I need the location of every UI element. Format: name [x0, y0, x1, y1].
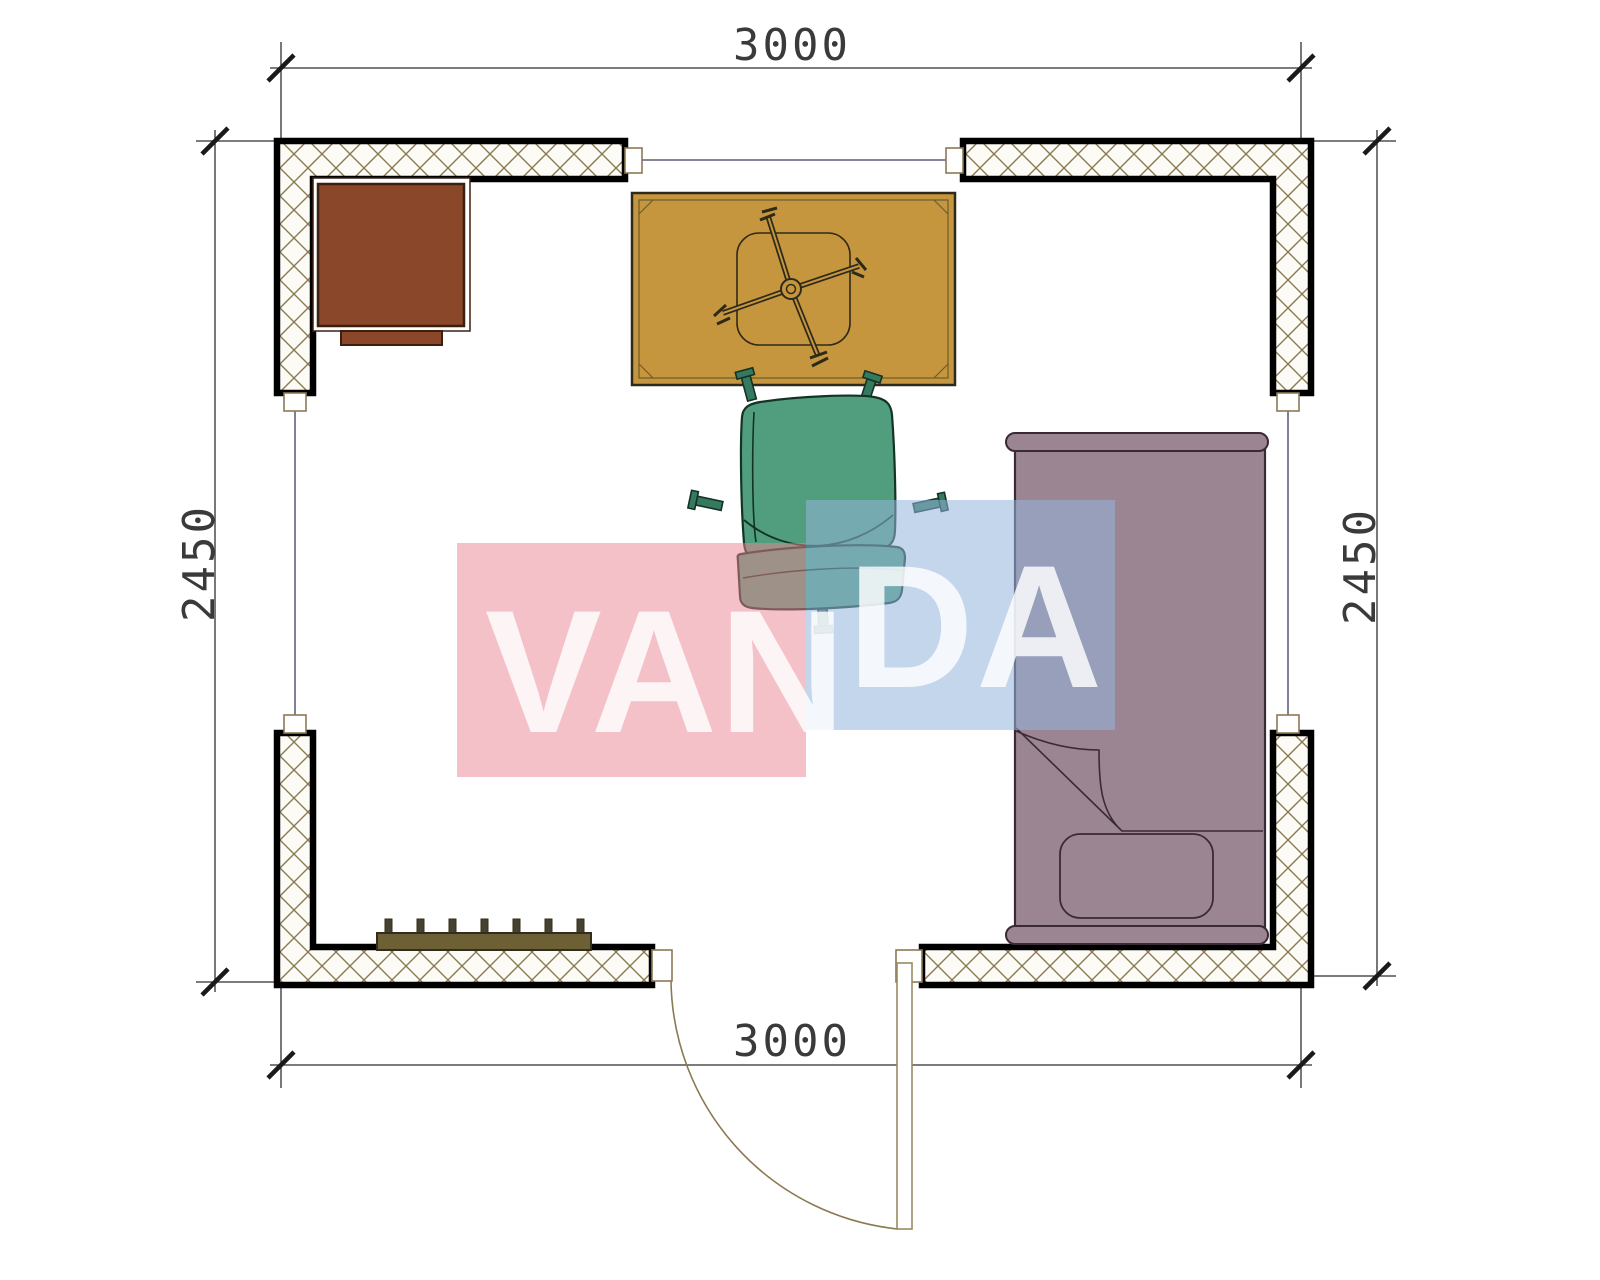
watermark-text: VANDA: [485, 585, 1185, 760]
door-leaf: [897, 963, 912, 1229]
dimension-bottom-label: 3000: [660, 1016, 924, 1067]
dimension-top-label: 3000: [660, 20, 924, 71]
dimension-left-label: 2450: [174, 431, 220, 695]
floor-plan-page: 3000 3000 2450 2450 VANDA: [0, 0, 1600, 1280]
desk: [313, 178, 470, 345]
wall-top-right: [963, 141, 1311, 393]
watermark-text-part2: DA: [848, 530, 1105, 725]
dimension-right-label: 2450: [1335, 434, 1381, 698]
table: [632, 193, 955, 385]
bed-footboard: [1006, 926, 1268, 944]
watermark-text-part1: VAN: [485, 575, 848, 770]
door: [671, 963, 912, 1229]
bed-pillow: [1060, 834, 1213, 918]
bed-headboard: [1006, 433, 1268, 451]
radiator: [377, 919, 591, 950]
